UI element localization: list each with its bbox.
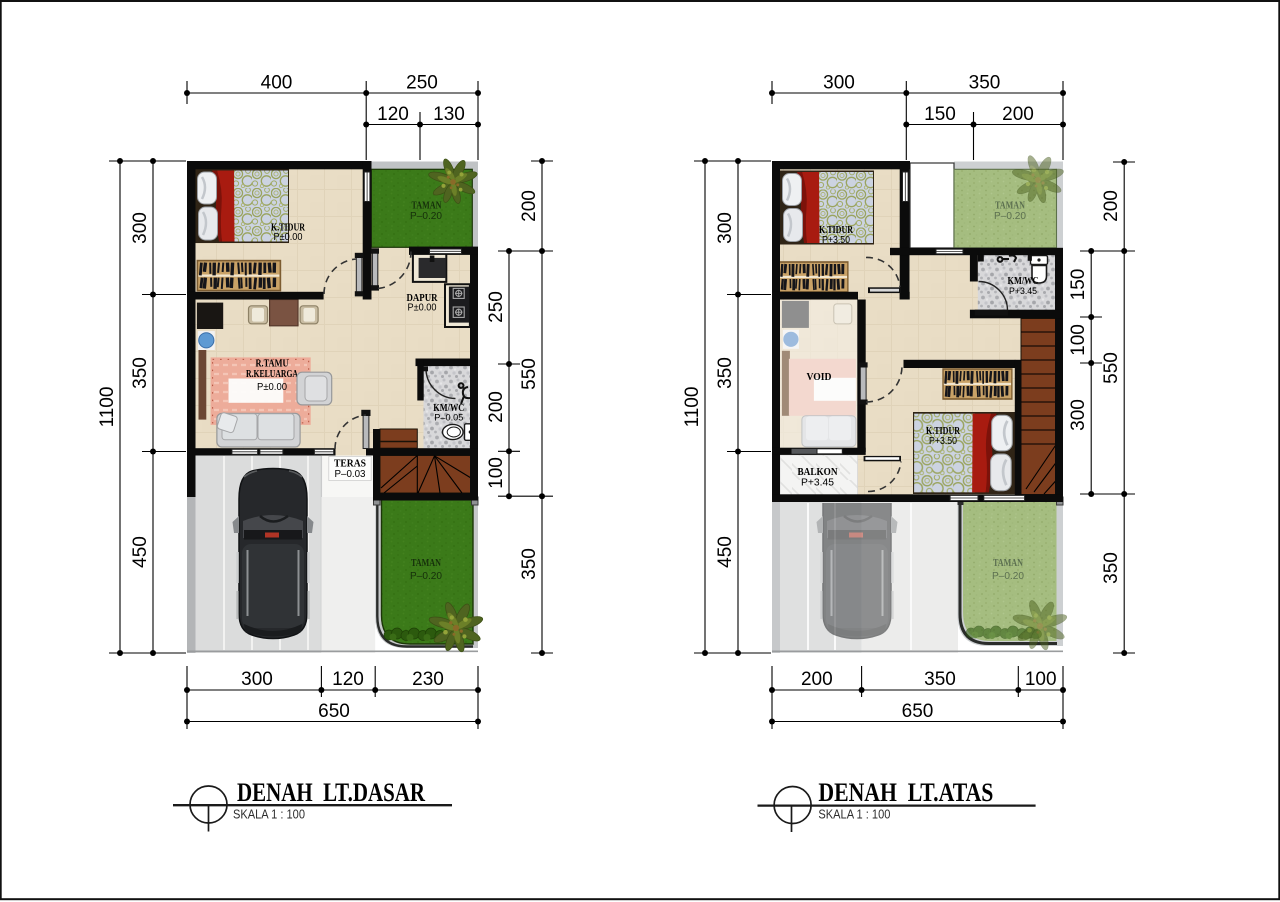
svg-text:BALKON: BALKON bbox=[798, 467, 838, 478]
svg-text:150: 150 bbox=[1068, 269, 1089, 301]
svg-text:350: 350 bbox=[1101, 552, 1122, 584]
svg-text:100: 100 bbox=[1025, 669, 1057, 690]
svg-text:550: 550 bbox=[1101, 352, 1122, 384]
svg-text:SKALA 1 : 100: SKALA 1 : 100 bbox=[233, 808, 305, 822]
svg-text:P–0.20: P–0.20 bbox=[992, 571, 1024, 582]
svg-text:P–0.03: P–0.03 bbox=[335, 469, 366, 480]
svg-text:TERAS: TERAS bbox=[334, 458, 366, 469]
svg-text:300: 300 bbox=[1068, 399, 1089, 431]
svg-text:130: 130 bbox=[433, 104, 465, 125]
svg-text:550: 550 bbox=[519, 358, 540, 390]
svg-text:650: 650 bbox=[902, 701, 934, 722]
svg-text:TAMAN: TAMAN bbox=[412, 200, 442, 211]
svg-text:200: 200 bbox=[1002, 104, 1034, 125]
svg-text:350: 350 bbox=[519, 548, 540, 580]
svg-text:P–0.05: P–0.05 bbox=[434, 413, 463, 424]
svg-text:1100: 1100 bbox=[97, 387, 118, 428]
svg-text:150: 150 bbox=[924, 104, 956, 125]
svg-text:230: 230 bbox=[412, 669, 444, 690]
svg-text:100: 100 bbox=[1068, 324, 1089, 356]
svg-text:P+3.45: P+3.45 bbox=[1009, 286, 1037, 297]
svg-text:200: 200 bbox=[1101, 190, 1122, 222]
svg-text:P±0.00: P±0.00 bbox=[257, 381, 287, 393]
svg-text:300: 300 bbox=[823, 73, 855, 94]
svg-text:P+3.50: P+3.50 bbox=[929, 436, 957, 447]
svg-text:P±0.00: P±0.00 bbox=[408, 303, 437, 314]
svg-text:400: 400 bbox=[261, 73, 293, 94]
svg-text:650: 650 bbox=[318, 701, 350, 722]
svg-text:350: 350 bbox=[969, 73, 1001, 94]
svg-text:VOID: VOID bbox=[807, 372, 832, 383]
svg-text:300: 300 bbox=[715, 212, 736, 244]
svg-text:300: 300 bbox=[130, 212, 151, 244]
svg-text:350: 350 bbox=[715, 357, 736, 389]
svg-text:300: 300 bbox=[241, 669, 273, 690]
svg-text:TAMAN: TAMAN bbox=[995, 200, 1025, 211]
svg-text:1100: 1100 bbox=[682, 387, 703, 428]
svg-text:P+3.50: P+3.50 bbox=[822, 235, 850, 246]
svg-text:120: 120 bbox=[377, 104, 409, 125]
svg-text:TAMAN: TAMAN bbox=[411, 558, 441, 569]
svg-text:P±0.00: P±0.00 bbox=[274, 232, 303, 243]
svg-text:250: 250 bbox=[406, 73, 438, 94]
svg-text:250: 250 bbox=[486, 291, 507, 323]
svg-text:100: 100 bbox=[486, 457, 507, 489]
svg-text:DENAH LT.ATAS: DENAH LT.ATAS bbox=[818, 778, 993, 807]
svg-text:120: 120 bbox=[332, 669, 364, 690]
svg-text:450: 450 bbox=[130, 536, 151, 568]
svg-text:R.KELUARGA: R.KELUARGA bbox=[246, 369, 298, 380]
svg-text:P–0.20: P–0.20 bbox=[994, 211, 1026, 222]
svg-text:R.TAMU: R.TAMU bbox=[256, 358, 289, 369]
svg-text:P–0.20: P–0.20 bbox=[410, 571, 442, 582]
svg-text:200: 200 bbox=[486, 391, 507, 423]
svg-text:200: 200 bbox=[801, 669, 833, 690]
svg-text:350: 350 bbox=[924, 669, 956, 690]
svg-text:350: 350 bbox=[130, 357, 151, 389]
svg-text:P–0.20: P–0.20 bbox=[410, 211, 442, 222]
svg-text:200: 200 bbox=[519, 190, 540, 222]
svg-text:450: 450 bbox=[715, 536, 736, 568]
svg-text:DENAH LT.DASAR: DENAH LT.DASAR bbox=[237, 778, 425, 807]
svg-text:SKALA 1 : 100: SKALA 1 : 100 bbox=[818, 808, 890, 822]
svg-text:P+3.45: P+3.45 bbox=[801, 478, 834, 489]
svg-text:TAMAN: TAMAN bbox=[993, 558, 1023, 569]
